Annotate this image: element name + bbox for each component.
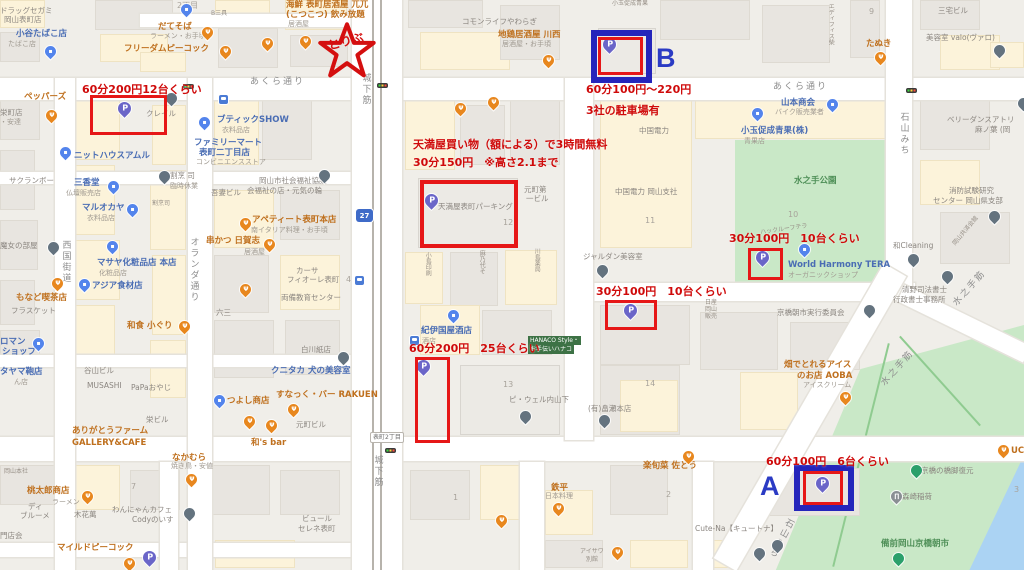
map-label[interactable]: アイスクリーム (803, 382, 851, 389)
map-label[interactable]: GALLERY&CAFE (72, 439, 146, 448)
map-label[interactable]: 行政書士事務所 (893, 296, 946, 304)
building (600, 98, 692, 248)
map-label[interactable]: 谷山ビル (84, 367, 114, 375)
road (520, 462, 544, 570)
map-label[interactable]: 表町二丁目店 (199, 149, 250, 158)
map-label[interactable]: ドラッグセガミ (0, 7, 53, 15)
map-label[interactable]: コモンライフやわらぎ (462, 18, 537, 26)
map-label[interactable]: ベリーダンスアトリ (947, 116, 1014, 124)
map-label[interactable]: 門店会 (0, 532, 23, 540)
restaurant-pin-icon[interactable]: Ψ (122, 556, 138, 570)
map-label[interactable]: 美容室 valo(ヴァロ) (926, 34, 995, 42)
map-label[interactable]: カーサ (296, 267, 318, 275)
map-label[interactable]: 中国電力 (639, 127, 669, 135)
map-label[interactable]: 仏壇販売店 (66, 190, 101, 197)
parking-price-annotation: 60分100円～220円 (586, 84, 691, 96)
road (693, 462, 713, 570)
map-label[interactable]: 魔女の部屋 (0, 242, 38, 250)
parking-price-annotation: 60分100円 6台くらい (766, 456, 889, 468)
map-label[interactable]: 衣料品店 (87, 215, 115, 222)
map-label[interactable]: 衣料品店 (222, 127, 250, 134)
map-label[interactable]: 会福祉の店・元気の輪 (247, 187, 322, 195)
building (610, 465, 668, 515)
building (850, 0, 880, 58)
place-pin-icon[interactable] (940, 269, 956, 285)
map-label[interactable]: 紀伊国屋酒店 (421, 327, 472, 336)
map-label[interactable]: 白川紙店 (301, 346, 331, 354)
restaurant-pin-icon[interactable]: Ψ (610, 545, 626, 561)
map-label[interactable]: 元町第 (524, 186, 547, 194)
map-label[interactable]: 三香堂 (74, 179, 100, 188)
map-label[interactable]: 岡山本社 (4, 469, 28, 475)
map-label[interactable]: クニタカ 犬の美容室 (271, 367, 350, 376)
restaurant-pin-icon[interactable]: Ψ (286, 402, 302, 418)
map-label[interactable]: ブルーメ (20, 512, 50, 520)
map-label[interactable]: のお店 AOBA (797, 372, 852, 381)
traffic-light-icon (385, 448, 396, 453)
map-label[interactable]: ブティックSHOW (217, 116, 289, 125)
map-label[interactable]: 日本料理 (545, 493, 573, 500)
map-label[interactable]: 串かつ 日賀志 (206, 237, 260, 246)
map-label[interactable]: 中国電力 岡山支社 (615, 188, 677, 196)
map-label[interactable]: フリーダムピーコック (124, 45, 209, 54)
map-label[interactable]: 和's bar (251, 439, 286, 448)
map-label[interactable]: センター 岡山県支部 (933, 197, 1003, 205)
map-label[interactable]: 和Cleaning (893, 242, 933, 250)
map-label[interactable]: 居酒屋 (288, 21, 309, 28)
map-label[interactable]: 和食 小ぐり (127, 322, 172, 331)
map-label[interactable]: B三具 (211, 11, 227, 17)
building (214, 320, 274, 378)
street-name[interactable]: あくら通り (250, 78, 305, 87)
street-name[interactable]: あくら通り (773, 83, 828, 92)
map-label[interactable]: 2 (666, 491, 671, 499)
bus-stop-icon[interactable] (355, 276, 364, 285)
marker-letter-b: B (656, 44, 676, 72)
bus-stop-icon[interactable] (219, 95, 228, 104)
map-label[interactable]: 小島印刷 (424, 252, 430, 276)
map-label[interactable]: 山本商会 (781, 99, 815, 108)
map-label[interactable]: たばこ店 (8, 41, 36, 48)
street-name[interactable]: 石山みち (898, 112, 907, 156)
map-label[interactable]: 栄町店 (0, 109, 23, 117)
map-label[interactable]: 小谷たばこ店 (16, 30, 67, 39)
map-label[interactable]: ビュール (302, 515, 332, 523)
map-label[interactable]: すなっく・バー RAKUEN (276, 391, 378, 400)
map-label[interactable]: ディ (28, 503, 42, 511)
map-label[interactable]: 麻ノ葉 (岡 (975, 126, 1010, 134)
map-label[interactable]: 割烹司 (152, 201, 170, 207)
building (280, 470, 340, 515)
parking-price-annotation: 30分150円 ※高さ2.1まで (413, 157, 558, 169)
map-label[interactable]: エディフィス柴 (827, 3, 833, 45)
map-label[interactable]: ピ・ウェル内山下 (509, 396, 569, 404)
map-label[interactable]: 青果店 (744, 138, 765, 145)
restaurant-pin-icon[interactable]: Ψ (264, 418, 280, 434)
map-label[interactable]: ショップ (2, 348, 36, 357)
building (660, 0, 750, 40)
map-label[interactable]: ラーメン (52, 499, 80, 506)
map-label[interactable]: 居酒屋・お手頃 (502, 41, 551, 48)
map-label[interactable]: ジャルダン美容室 (583, 253, 643, 261)
shop-pin-icon[interactable]: ▪ (212, 393, 228, 409)
map-label[interactable]: コンビニエンスストア (196, 159, 266, 166)
map-label[interactable]: アジア食材店 (92, 282, 143, 291)
shop-pin-icon[interactable]: ▪ (125, 202, 141, 218)
map-label[interactable]: 水之手公園 (794, 177, 837, 186)
map-label[interactable]: 南イタリア料理・お手頃 (251, 227, 328, 234)
map-label[interactable]: 京橋朝市実行委員会 (777, 309, 845, 317)
building (262, 100, 312, 160)
map-label[interactable]: 焼き鳥・安値 (171, 463, 213, 470)
map-label[interactable]: マイルドピーコック (57, 544, 134, 553)
map-label[interactable]: 4 (346, 276, 351, 284)
map-label[interactable]: ロマン (0, 338, 26, 347)
map-label[interactable]: 販売 (705, 314, 717, 320)
map-label[interactable]: 岡山表町店 (4, 16, 42, 24)
map-label[interactable]: わんにゃんカフェ (112, 506, 172, 514)
street-name[interactable]: オランダ通り (188, 237, 197, 303)
traffic-light-icon (906, 88, 917, 93)
map-label[interactable]: 畑でとれるアイス (784, 361, 851, 370)
map-label[interactable]: (有)畠瀬本店 (588, 405, 631, 413)
map-label[interactable]: タヤマ鞄店 (0, 368, 43, 377)
building (140, 52, 186, 72)
map-canvas[interactable]: あくら通りあくら通りオランダ通り西国街道城下筋城下筋石山みち石山みち水之手筋水之… (0, 0, 1024, 570)
map-label[interactable]: 1 (453, 494, 458, 502)
map-label[interactable]: 備前岡山京橋朝市 (881, 540, 949, 549)
map-label[interactable]: 小玉促成青果(株) (741, 127, 808, 136)
map-label[interactable]: もなど喫茶店 (16, 294, 67, 303)
red-highlight-box (803, 471, 843, 505)
building (740, 372, 798, 430)
map-label[interactable]: 地鶏居酒屋 川西 (498, 31, 560, 40)
parking-price-annotation: 60分200円12台くらい (82, 84, 202, 96)
map-label[interactable]: アイサワ (580, 549, 604, 555)
map-label[interactable]: バイク販売業者 (775, 109, 824, 116)
map-label[interactable]: ファミリーマート (194, 139, 262, 148)
map-label[interactable]: 別館 (586, 557, 598, 563)
map-label[interactable]: 両備教育センター (281, 294, 341, 302)
map-label[interactable]: 岡山市社会福祉協議 (259, 177, 327, 185)
map-label[interactable]: UC (1011, 447, 1024, 456)
map-label[interactable]: ニットハウスアムル (74, 152, 150, 161)
red-highlight-box (415, 357, 450, 443)
map-label[interactable]: 一ビル (526, 195, 549, 203)
street-name[interactable]: 水之手筋 (952, 269, 988, 308)
map-label[interactable]: 麻乃代そ (478, 250, 484, 274)
map-label[interactable]: 3 (1014, 486, 1019, 494)
map-label[interactable]: 7 (131, 483, 136, 491)
map-label[interactable]: MUSASHI (87, 382, 122, 390)
map-label[interactable]: 三宅ビル (938, 7, 968, 15)
red-highlight-box (420, 180, 518, 248)
map-label[interactable]: 京橋の橋脚復元 (921, 467, 974, 475)
map-label[interactable]: 海鮮 表町居酒屋 兀兀 (286, 1, 368, 10)
map-label[interactable]: 消防試験研究 (949, 187, 994, 195)
map-label[interactable]: 森崎稲荷 (902, 493, 932, 501)
map-label[interactable]: 10 (788, 211, 798, 219)
map-label[interactable]: だてそば (158, 23, 192, 32)
building (505, 250, 557, 305)
map-label[interactable]: 清野司法書士 (902, 286, 947, 294)
map-label[interactable]: World Harmony TERA (788, 261, 890, 270)
map-label[interactable]: セレネ表町 (298, 525, 336, 533)
map-label[interactable]: 吾妻ビル (211, 189, 241, 197)
map-label[interactable]: ん店 (14, 379, 28, 386)
street-name[interactable]: 城下筋 (372, 455, 381, 488)
map-label[interactable]: マサヤ化粧品店 本店 (97, 259, 176, 268)
place-pin-icon[interactable] (595, 263, 611, 279)
map-label[interactable]: マルオカヤ (82, 204, 125, 213)
parking-price-annotation: 30分100円 10台くらい (729, 233, 860, 245)
parking-price-annotation: 3社の駐車場有 (586, 105, 660, 117)
map-label[interactable]: Codyのいす (132, 516, 174, 524)
map-label[interactable]: つよし商店 (227, 397, 270, 406)
parking-price-annotation: 天満屋買い物（額による）で3時間無料 (413, 139, 607, 151)
restaurant-pin-icon[interactable]: Ψ (242, 414, 258, 430)
marker-letter-a: A (760, 472, 780, 500)
shop-pin-icon[interactable]: ▪ (43, 44, 59, 60)
map-label[interactable]: ・安達 (0, 119, 21, 126)
map-label[interactable]: 割烹 司 (170, 172, 195, 180)
map-label[interactable]: (こつこつ) 飲み放題 (286, 11, 365, 20)
map-label[interactable]: 小玉促成青果 (612, 1, 648, 7)
red-highlight-box (605, 300, 657, 330)
map-label[interactable]: フィオーレ表町 (287, 276, 339, 284)
building (762, 5, 830, 63)
map-label[interactable]: 9 (869, 8, 874, 16)
map-label[interactable]: 化粧品店 (99, 270, 127, 277)
map-label[interactable]: ペッパーズ (24, 93, 66, 102)
building (420, 32, 510, 70)
parking-price-annotation: 60分200円 25台くらい (409, 343, 540, 355)
building (920, 0, 980, 30)
map-label[interactable]: ラーメン・お手頃 (150, 33, 206, 40)
red-highlight-box (598, 37, 643, 75)
map-label[interactable]: 居酒屋 (244, 249, 265, 256)
map-label[interactable]: 臨時休業 (170, 183, 198, 190)
map-label[interactable]: ありがとうファーム (72, 427, 148, 436)
building (410, 470, 470, 520)
red-highlight-box (90, 95, 167, 135)
building (630, 540, 688, 568)
place-pin-icon[interactable] (752, 546, 768, 562)
map-label[interactable]: 表町2丁目 (370, 432, 404, 443)
map-label[interactable]: 桃太郎商店 (27, 487, 70, 496)
map-label[interactable]: サクランボー (9, 177, 54, 185)
building (700, 312, 778, 370)
street-name[interactable]: 西国街道 (60, 240, 69, 284)
traffic-light-icon (377, 83, 388, 88)
map-label[interactable]: アペティート表町本店 (252, 216, 336, 225)
map-label[interactable]: 栄ビル (146, 416, 169, 424)
red-highlight-box (748, 248, 783, 280)
map-label[interactable]: 元町ビル (296, 421, 326, 429)
map-label[interactable]: オーガニックショップ (788, 272, 858, 279)
map-label[interactable]: 11 (645, 217, 655, 225)
map-label[interactable]: フラスケット (11, 307, 56, 315)
map-label[interactable]: 木花萬 (74, 511, 97, 519)
map-label[interactable]: 14 (645, 380, 655, 388)
map-label[interactable]: 六三 (216, 309, 231, 317)
map-label[interactable]: Cute-Na【キュートナ】 (695, 525, 778, 533)
star-annotation-icon (318, 22, 376, 80)
building (450, 252, 498, 306)
route-shield: 27 (356, 209, 373, 222)
map-label[interactable]: 13 (503, 381, 513, 389)
map-label[interactable]: 川島薬局 (533, 248, 539, 272)
map-label[interactable]: たぬき (866, 40, 891, 49)
map-label[interactable]: PaPaおやじ (131, 384, 171, 392)
parking-price-annotation: 30分100円 10台くらい (596, 286, 727, 298)
